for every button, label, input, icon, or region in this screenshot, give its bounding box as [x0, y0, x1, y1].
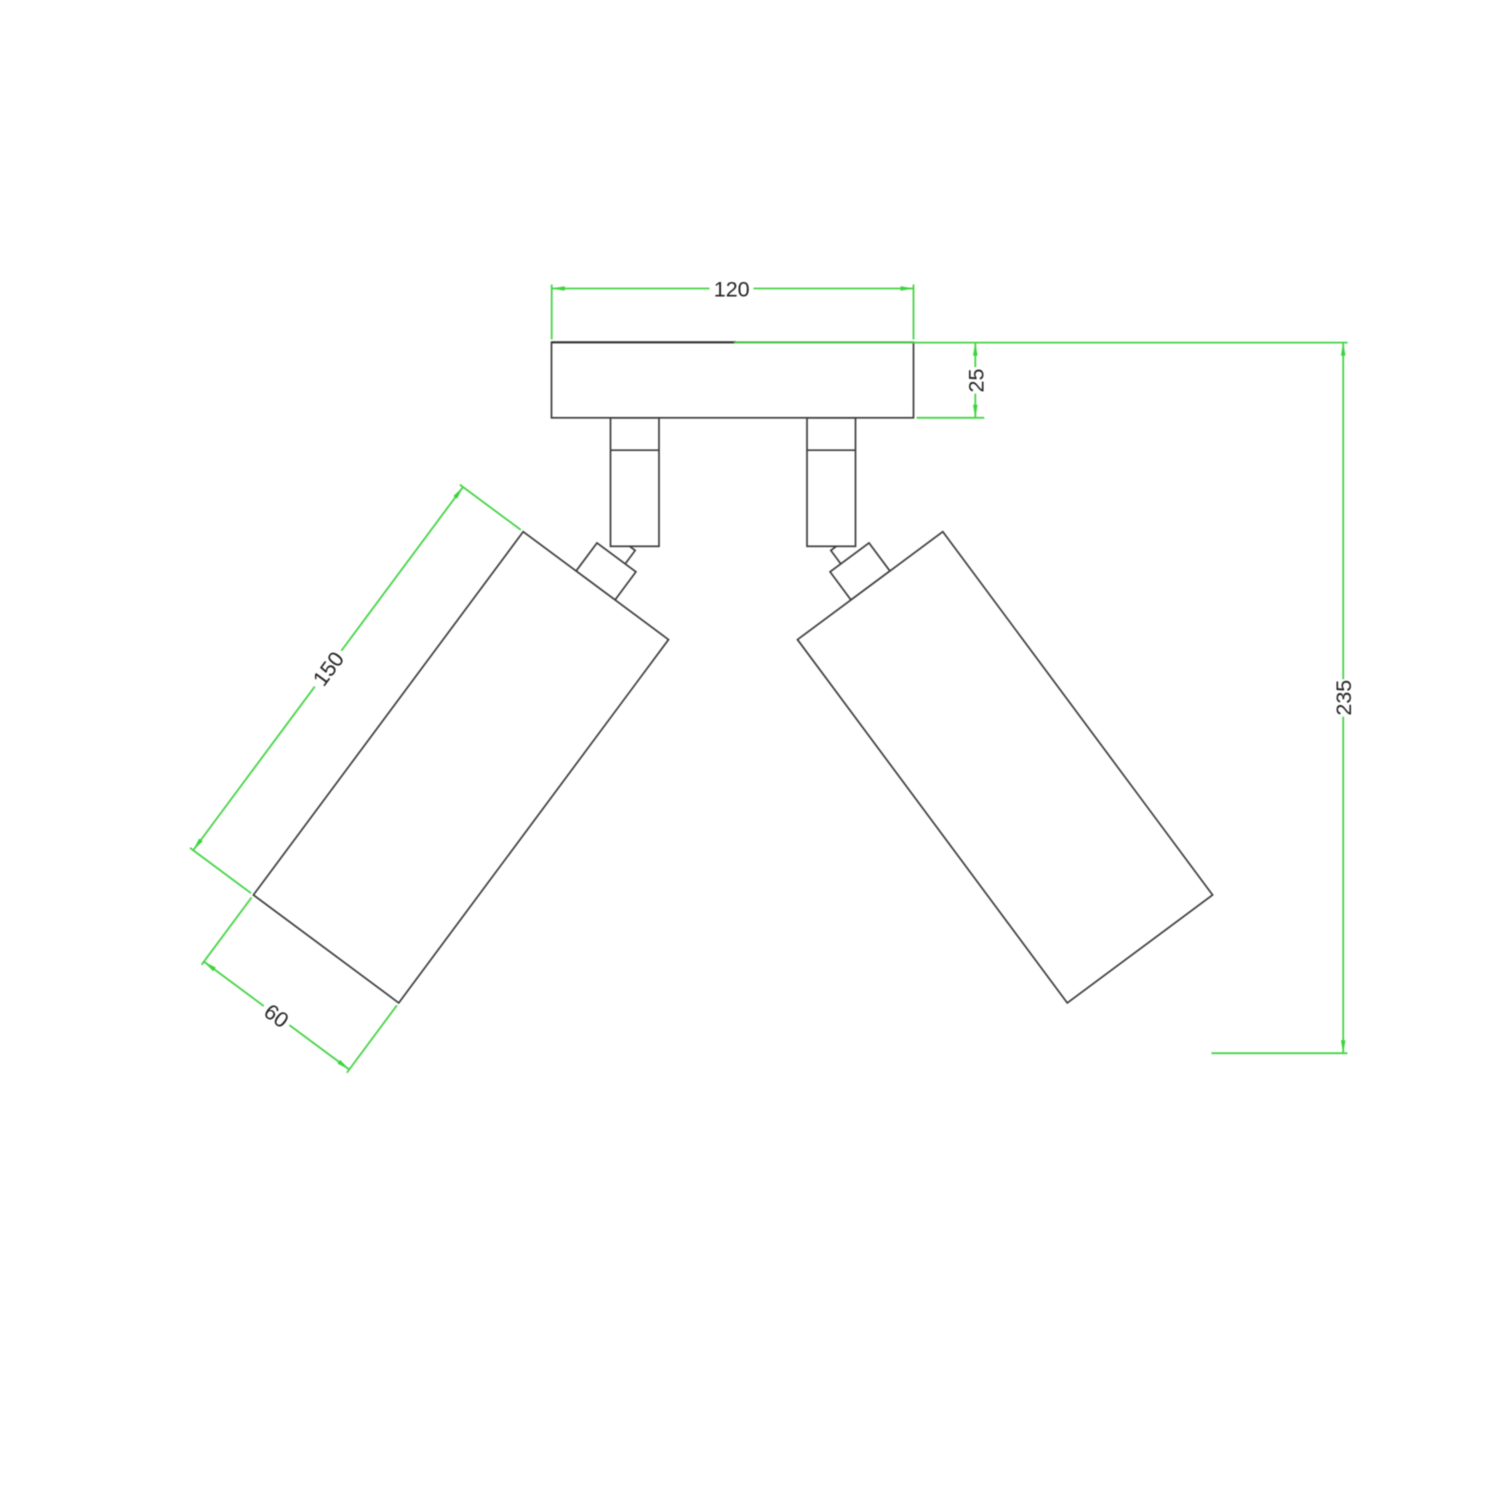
svg-text:25: 25 — [964, 369, 988, 393]
svg-text:120: 120 — [714, 277, 750, 301]
svg-text:235: 235 — [1332, 680, 1356, 716]
